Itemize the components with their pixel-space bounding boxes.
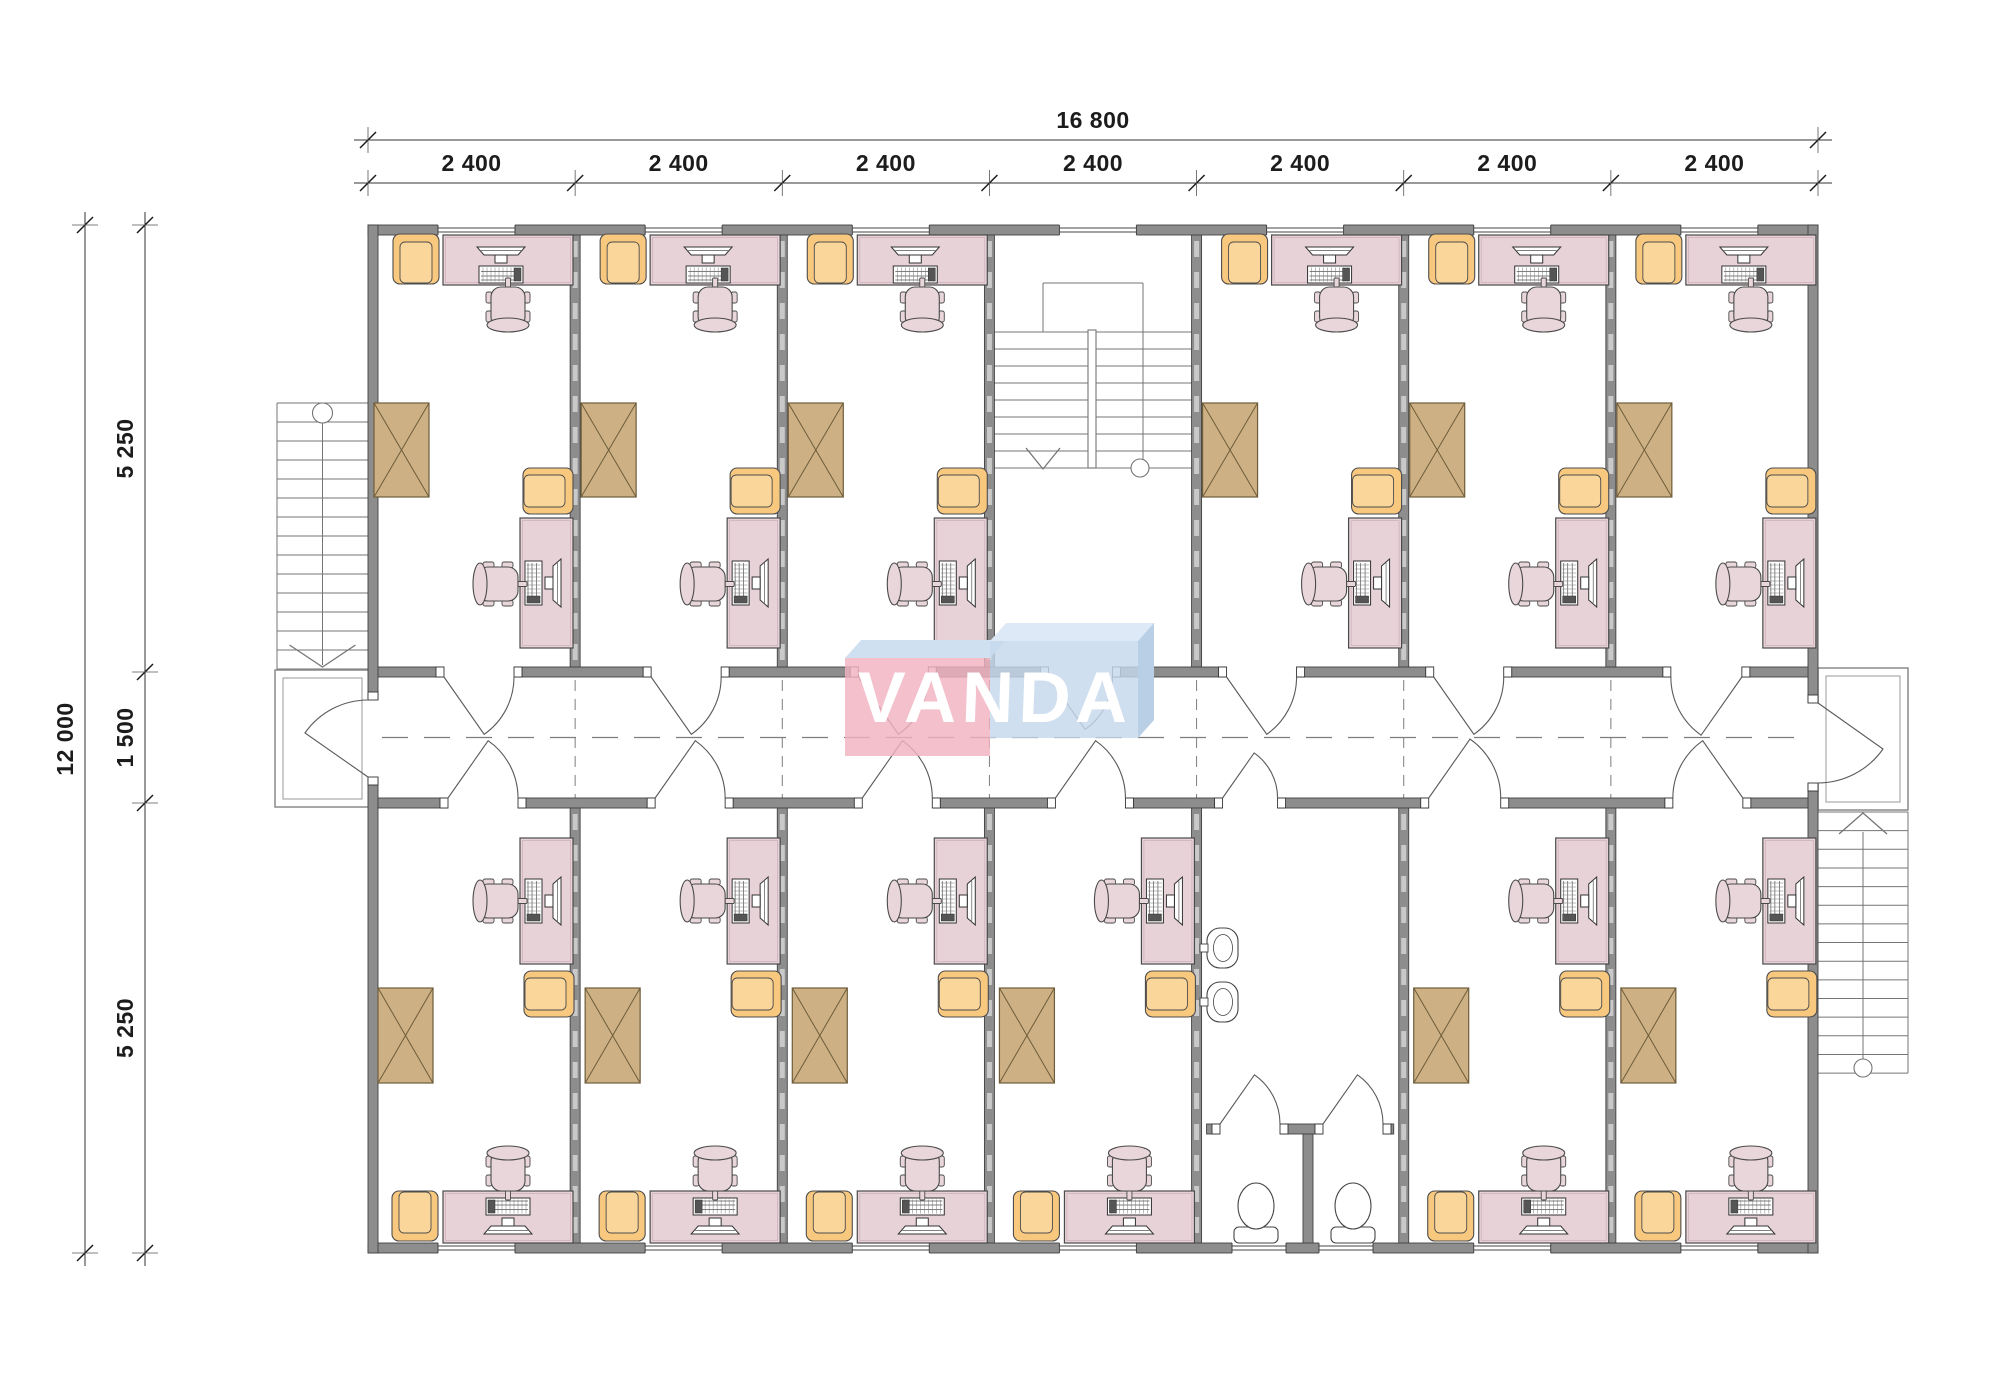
chair-back <box>487 1146 529 1160</box>
window <box>852 225 929 236</box>
chair-back <box>473 563 487 605</box>
armchair <box>1766 468 1816 514</box>
desk-chair <box>1509 879 1563 923</box>
armchair <box>730 468 780 514</box>
door-opening <box>1223 797 1278 809</box>
door-jamb <box>1504 667 1512 677</box>
monitor-stand <box>545 895 553 907</box>
storage-cabinet <box>581 403 636 497</box>
armchair-seat <box>606 1192 638 1233</box>
storage-cabinet <box>585 988 640 1083</box>
armchair <box>938 971 988 1017</box>
stair-rail <box>1088 330 1096 468</box>
window <box>1059 225 1136 236</box>
door-jamb <box>368 692 378 700</box>
monitor-icon <box>1589 877 1597 925</box>
armchair-seat <box>1229 242 1261 283</box>
window <box>1232 1243 1286 1254</box>
door-jamb <box>1315 1124 1323 1134</box>
storage-cabinet <box>378 988 433 1083</box>
armchair-seat <box>1642 1192 1674 1233</box>
monitor-icon <box>1796 559 1804 607</box>
armchair-seat <box>1560 475 1601 507</box>
chair-back <box>1716 563 1730 605</box>
door-jamb <box>1125 798 1133 808</box>
monitor-icon <box>553 559 561 607</box>
chair-back <box>1523 318 1565 332</box>
door-swing <box>1434 677 1504 734</box>
door-jamb <box>1665 798 1673 808</box>
dim-label-bay-4: 2 400 <box>1063 150 1123 176</box>
window <box>1319 1243 1373 1254</box>
door-jamb <box>1663 667 1671 677</box>
armchair-seat <box>1146 978 1187 1010</box>
monitor-icon <box>477 247 525 255</box>
armchair <box>1429 234 1475 284</box>
monitor-icon <box>484 1226 532 1234</box>
chair-back <box>1716 880 1730 922</box>
armchair-seat <box>525 978 566 1010</box>
entrance-porch-right <box>1818 668 1908 810</box>
door-opening <box>1220 1123 1280 1135</box>
armchair-seat <box>731 475 772 507</box>
door-jamb <box>850 667 858 677</box>
desk-chair <box>887 562 941 606</box>
keyboard-numpad <box>721 268 728 281</box>
chair-back <box>1108 1146 1150 1160</box>
door-swing <box>655 741 725 798</box>
monitor-stand <box>916 1218 928 1226</box>
keyboard-numpad <box>1770 914 1783 921</box>
door-jamb <box>1047 798 1055 808</box>
desk-chair <box>1302 562 1356 606</box>
monitor-stand <box>1581 577 1589 589</box>
armchair <box>599 1191 645 1241</box>
armchair-seat <box>732 978 773 1010</box>
monitor-stand <box>545 577 553 589</box>
door-swing <box>1673 741 1743 798</box>
keyboard-numpad <box>695 1200 702 1213</box>
armchair <box>806 1191 852 1241</box>
armchair <box>393 234 439 284</box>
keyboard-numpad <box>1563 914 1576 921</box>
dim-label-bay-7: 2 400 <box>1684 150 1744 176</box>
armchair <box>1428 1191 1474 1241</box>
toilet-bowl <box>1335 1183 1371 1229</box>
armchair-seat <box>938 475 979 507</box>
chair-back <box>694 1146 736 1160</box>
faucet-icon <box>1200 944 1208 952</box>
monitor-icon <box>1174 877 1182 925</box>
monitor-stand <box>1166 895 1174 907</box>
door-jamb <box>1278 798 1286 808</box>
door-opening <box>444 666 514 678</box>
keyboard-numpad <box>1356 596 1369 603</box>
door-jamb <box>1743 798 1751 808</box>
monitor-stand <box>502 1218 514 1226</box>
monitor-stand <box>1745 1218 1757 1226</box>
storage-cabinet <box>999 988 1054 1083</box>
monitor-stand <box>495 255 507 263</box>
monitor-icon <box>691 1226 739 1234</box>
monitor-icon <box>684 247 732 255</box>
chair-back <box>1730 1146 1772 1160</box>
door-jamb <box>1501 798 1509 808</box>
storage-cabinet <box>792 988 847 1083</box>
monitor-icon <box>760 559 768 607</box>
window <box>438 225 515 236</box>
armchair-seat <box>1768 978 1809 1010</box>
chair-back <box>901 1146 943 1160</box>
window <box>1681 225 1758 236</box>
desk-chair <box>693 278 737 332</box>
armchair <box>1767 971 1817 1017</box>
monitor-stand <box>909 255 921 263</box>
door-jamb <box>1212 1124 1220 1134</box>
door-swing <box>651 677 721 734</box>
chair-back <box>1316 318 1358 332</box>
faucet-icon <box>1200 998 1208 1006</box>
entrance-porch-left <box>275 670 370 807</box>
window <box>1681 1243 1758 1254</box>
armchair <box>1145 971 1195 1017</box>
keyboard-numpad <box>1524 1200 1531 1213</box>
window <box>1267 225 1344 236</box>
basin-rim <box>1207 982 1238 1022</box>
desk-chair <box>1094 879 1148 923</box>
desk-chair <box>680 562 734 606</box>
window <box>645 1243 722 1254</box>
door-swing <box>444 677 514 734</box>
monitor-stand <box>709 1218 721 1226</box>
toilet-bowl <box>1238 1183 1274 1229</box>
chair-back <box>1509 563 1523 605</box>
keyboard-numpad <box>488 1200 495 1213</box>
chair-back <box>680 880 694 922</box>
armchair <box>1635 1191 1681 1241</box>
chair-back <box>1509 880 1523 922</box>
door-opening <box>1048 666 1112 678</box>
dim-label-bay-3: 2 400 <box>856 150 916 176</box>
monitor-stand <box>1531 255 1543 263</box>
armchair-seat <box>1767 475 1808 507</box>
door-swing <box>1227 677 1297 734</box>
chair-back <box>1730 318 1772 332</box>
door-jamb <box>440 798 448 808</box>
armchair-seat <box>939 978 980 1010</box>
monitor-icon <box>1513 247 1561 255</box>
monitor-icon <box>967 877 975 925</box>
toilet <box>1331 1183 1375 1243</box>
monitor-stand <box>1538 1218 1550 1226</box>
entrance-door-left <box>305 700 368 777</box>
armchair-seat <box>1436 242 1468 283</box>
door-jamb <box>1742 667 1750 677</box>
keyboard-numpad <box>1563 596 1576 603</box>
monitor-icon <box>1727 1226 1775 1234</box>
chair-back <box>680 563 694 605</box>
monitor-stand <box>1788 895 1796 907</box>
armchair-seat <box>400 242 432 283</box>
door-jamb <box>1215 798 1223 808</box>
door-opening <box>448 797 518 809</box>
armchair <box>1636 234 1682 284</box>
keyboard-numpad <box>1343 268 1350 281</box>
dim-label-left-seg-1: 5 250 <box>112 418 138 478</box>
door-jamb <box>1219 667 1227 677</box>
monitor-icon <box>1589 559 1597 607</box>
monitor-icon <box>1520 1226 1568 1234</box>
monitor-stand <box>1324 255 1336 263</box>
door-jamb <box>643 667 651 677</box>
door-swing <box>1429 739 1501 798</box>
window <box>1059 1243 1136 1254</box>
armchair <box>1013 1191 1059 1241</box>
monitor-icon <box>1105 1226 1153 1234</box>
armchair <box>1560 971 1610 1017</box>
stair-start-circle <box>313 403 333 423</box>
keyboard-numpad <box>1550 268 1557 281</box>
desk-chair <box>1522 278 1566 332</box>
dim-label-bay-1: 2 400 <box>442 150 502 176</box>
chair-back <box>1523 1146 1565 1160</box>
wash-basin <box>1200 928 1238 968</box>
floor-plan-drawing: 16 8002 4002 4002 4002 4002 4002 4002 40… <box>0 0 2000 1380</box>
entrance-door-right <box>1818 703 1883 783</box>
door-swing <box>858 677 928 734</box>
monitor-stand <box>1738 255 1750 263</box>
keyboard-numpad <box>941 596 954 603</box>
desk-chair <box>1315 278 1359 332</box>
armchair-seat <box>399 1192 431 1233</box>
door-opening <box>1434 666 1504 678</box>
floor-plan-page: 16 8002 4002 4002 4002 4002 4002 4002 40… <box>0 0 2000 1380</box>
storage-cabinet <box>1617 403 1672 497</box>
wash-basin <box>1200 982 1238 1022</box>
storage-cabinet <box>788 403 843 497</box>
armchair <box>937 468 987 514</box>
stair-end-circle <box>1854 1059 1872 1077</box>
desk-chair <box>473 879 527 923</box>
door-opening <box>1429 797 1501 809</box>
keyboard-numpad <box>734 914 747 921</box>
monitor-icon <box>967 559 975 607</box>
monitor-icon <box>891 247 939 255</box>
window <box>645 225 722 236</box>
keyboard-numpad <box>1148 914 1161 921</box>
monitor-icon <box>553 877 561 925</box>
door-swing <box>1223 753 1278 798</box>
window <box>438 1243 515 1254</box>
door-jamb <box>1040 667 1048 677</box>
door-jamb <box>436 667 444 677</box>
door-jamb <box>1112 667 1120 677</box>
stair-column <box>1131 459 1149 477</box>
armchair-seat <box>1020 1192 1052 1233</box>
armchair-seat <box>1561 978 1602 1010</box>
monitor-icon <box>1306 247 1354 255</box>
chair-back <box>887 880 901 922</box>
armchair <box>600 234 646 284</box>
desk-chair <box>1716 562 1770 606</box>
storage-cabinet <box>374 403 429 497</box>
door-jamb <box>647 798 655 808</box>
door-jamb <box>854 798 862 808</box>
door-opening <box>367 700 379 777</box>
storage-cabinet <box>1414 988 1469 1083</box>
dim-label-left-total: 12 000 <box>52 702 78 775</box>
keyboard-numpad <box>1109 1200 1116 1213</box>
armchair <box>1222 234 1268 284</box>
door-swing <box>448 741 518 798</box>
desk-chair <box>473 562 527 606</box>
armchair-seat <box>814 242 846 283</box>
door-swing <box>1048 677 1112 729</box>
door-opening <box>651 666 721 678</box>
keyboard-numpad <box>514 268 521 281</box>
door-jamb <box>1421 798 1429 808</box>
armchair-seat <box>1435 1192 1467 1233</box>
chair-back <box>901 318 943 332</box>
armchair-seat <box>813 1192 845 1233</box>
dim-label-bay-5: 2 400 <box>1270 150 1330 176</box>
monitor-icon <box>760 877 768 925</box>
armchair <box>523 468 573 514</box>
desk-chair <box>1509 562 1563 606</box>
door-jamb <box>1383 1124 1391 1134</box>
monitor-stand <box>959 895 967 907</box>
desk-chair <box>1729 278 1773 332</box>
keyboard-numpad <box>734 596 747 603</box>
monitor-stand <box>1581 895 1589 907</box>
monitor-icon <box>1720 247 1768 255</box>
monitor-stand <box>959 577 967 589</box>
window <box>1474 1243 1551 1254</box>
armchair-seat <box>524 475 565 507</box>
monitor-stand <box>752 895 760 907</box>
toilet <box>1234 1183 1278 1243</box>
desk-chair <box>887 879 941 923</box>
partition-wall-top <box>1192 235 1202 667</box>
armchair-seat <box>607 242 639 283</box>
entrance-porch-left-inner <box>283 678 362 799</box>
door-swing <box>1671 677 1742 735</box>
chair-back <box>1094 880 1108 922</box>
window <box>1474 225 1551 236</box>
monitor-stand <box>752 577 760 589</box>
door-jamb <box>514 667 522 677</box>
armchair <box>392 1191 438 1241</box>
layer-grid <box>382 661 1804 814</box>
armchair <box>524 971 574 1017</box>
monitor-stand <box>1788 577 1796 589</box>
dim-label-top-total: 16 800 <box>1056 107 1129 133</box>
keyboard-numpad <box>527 914 540 921</box>
storage-cabinet <box>1203 403 1258 497</box>
dim-label-bay-6: 2 400 <box>1477 150 1537 176</box>
desk-chair <box>486 278 530 332</box>
armchair-seat <box>1643 242 1675 283</box>
armchair <box>807 234 853 284</box>
door-opening <box>1055 797 1125 809</box>
chair-back <box>487 318 529 332</box>
storage-cabinet <box>1621 988 1676 1083</box>
dim-label-left-seg-2: 1 500 <box>112 707 138 767</box>
door-opening <box>862 797 932 809</box>
door-jamb <box>725 798 733 808</box>
keyboard-numpad <box>1770 596 1783 603</box>
door-jamb <box>721 667 729 677</box>
keyboard-numpad <box>928 268 935 281</box>
monitor-stand <box>1123 1218 1135 1226</box>
chair-back <box>887 563 901 605</box>
window <box>852 1243 929 1254</box>
monitor-stand <box>702 255 714 263</box>
keyboard-numpad <box>1757 268 1764 281</box>
door-jamb <box>928 667 936 677</box>
keyboard-numpad <box>527 596 540 603</box>
monitor-stand <box>1374 577 1382 589</box>
chair-back <box>473 880 487 922</box>
door-swing <box>1323 1075 1383 1124</box>
armchair <box>731 971 781 1017</box>
keyboard-numpad <box>902 1200 909 1213</box>
door-opening <box>655 797 725 809</box>
keyboard-numpad <box>1731 1200 1738 1213</box>
door-swing <box>1220 1075 1280 1124</box>
door-opening <box>1323 1123 1383 1135</box>
desk-chair <box>1716 879 1770 923</box>
dim-label-left-seg-3: 5 250 <box>112 998 138 1058</box>
keyboard-numpad <box>941 914 954 921</box>
door-jamb <box>1808 783 1818 791</box>
chair-back <box>694 318 736 332</box>
door-opening <box>1671 666 1742 678</box>
door-jamb <box>1280 1124 1288 1134</box>
door-opening <box>1807 703 1819 783</box>
armchair <box>1352 468 1402 514</box>
door-jamb <box>1426 667 1434 677</box>
armchair-seat <box>1353 475 1394 507</box>
basin-rim <box>1207 928 1238 968</box>
door-jamb <box>1297 667 1305 677</box>
monitor-icon <box>1382 559 1390 607</box>
door-jamb <box>518 798 526 808</box>
entrance-porch-right-inner <box>1826 676 1900 802</box>
desk-chair <box>900 278 944 332</box>
stall-partition <box>1303 1134 1313 1243</box>
door-swing <box>1055 741 1125 798</box>
door-jamb <box>1808 695 1818 703</box>
door-jamb <box>932 798 940 808</box>
chair-back <box>1302 563 1316 605</box>
door-swing <box>862 741 932 798</box>
door-opening <box>858 666 928 678</box>
armchair <box>1559 468 1609 514</box>
door-opening <box>1673 797 1743 809</box>
dim-label-bay-2: 2 400 <box>649 150 709 176</box>
partition-wall-bottom <box>1399 808 1409 1243</box>
desk-chair <box>680 879 734 923</box>
door-opening <box>1227 666 1297 678</box>
monitor-icon <box>898 1226 946 1234</box>
layer-fixtures <box>1200 928 1375 1243</box>
storage-cabinet <box>1410 403 1465 497</box>
door-jamb <box>368 777 378 785</box>
monitor-icon <box>1796 877 1804 925</box>
